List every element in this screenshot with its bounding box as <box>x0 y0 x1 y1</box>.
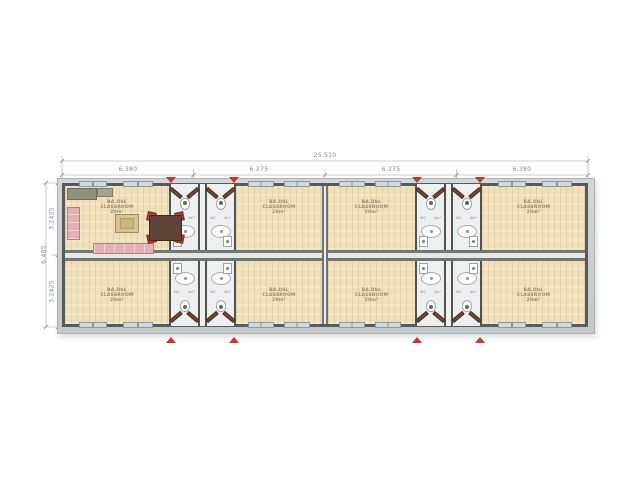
room-label: BA.DbLCLASSROOM20m² <box>482 288 585 303</box>
room-top-2: BA.DbLCLASSROOM20m² <box>236 186 322 250</box>
wc-unit: WC4m² <box>172 257 197 325</box>
room-top-3: BA.DbLCLASSROOM20m² <box>328 186 415 250</box>
wc-unit: WC4m² <box>454 185 479 253</box>
door-leaf <box>468 311 481 323</box>
dimension-segment-1: 6.380 <box>108 166 148 173</box>
entrance-marker-icon <box>412 337 422 343</box>
sink-icon <box>223 236 232 247</box>
door-leaf <box>205 187 218 199</box>
sink-icon <box>469 236 478 247</box>
window <box>79 322 107 328</box>
wc-unit: WC4m² <box>418 257 443 325</box>
floor-plan-canvas: 25.510 6.380 6.275 6.275 6.380 6.485 3.2… <box>0 0 625 490</box>
sofa <box>67 207 80 240</box>
toilet-icon <box>180 198 190 210</box>
window <box>498 181 526 187</box>
wc-unit-label: WC4m² <box>418 216 443 220</box>
wc-unit-label: WC4m² <box>208 216 233 220</box>
room-label: BA.DbLCLASSROOM20m² <box>65 288 169 303</box>
room-bottom-2: BA.DbLCLASSROOM20m² <box>236 261 322 324</box>
entrance-marker-icon <box>475 337 485 343</box>
room-label: BA.DbLCLASSROOM20m² <box>328 288 415 303</box>
door-leaf <box>169 187 182 199</box>
door-leaf <box>432 311 445 323</box>
window <box>123 322 153 328</box>
sink-icon <box>469 263 478 274</box>
toilet-icon <box>462 300 472 312</box>
dimension-segment-4: 6.380 <box>502 166 542 173</box>
dimension-overall-height: 6.485 <box>41 237 48 273</box>
toilet-icon <box>462 198 472 210</box>
window <box>284 181 310 187</box>
wc-unit-label: WC4m² <box>208 290 233 294</box>
door-leaf <box>415 311 428 323</box>
sink-icon <box>419 263 428 274</box>
window <box>79 181 107 187</box>
entrance-marker-icon <box>475 177 485 183</box>
door-leaf <box>186 311 199 323</box>
door-leaf <box>222 187 235 199</box>
door-leaf <box>169 311 182 323</box>
center-partition-wall <box>322 186 328 324</box>
entrance-marker-icon <box>229 337 239 343</box>
entrance-marker-icon <box>229 177 239 183</box>
window <box>542 322 572 328</box>
room-label: BA.DbLCLASSROOM20m² <box>482 200 585 215</box>
door-leaf <box>432 187 445 199</box>
entrance-marker-icon <box>412 177 422 183</box>
wc-unit-label: WC4m² <box>454 216 479 220</box>
window <box>248 181 274 187</box>
room-bottom-4: BA.DbLCLASSROOM20m² <box>482 261 585 324</box>
coffee-table <box>115 214 139 233</box>
wc-unit: WC4m² <box>418 185 443 253</box>
window <box>498 322 526 328</box>
room-top-4: BA.DbLCLASSROOM20m² <box>482 186 585 250</box>
door-leaf <box>186 187 199 199</box>
door-leaf <box>222 311 235 323</box>
toilet-icon <box>426 198 436 210</box>
room-label: BA.DbLCLASSROOM20m² <box>236 288 322 303</box>
window <box>375 181 401 187</box>
wc-unit-label: WC4m² <box>454 290 479 294</box>
sink-icon <box>223 263 232 274</box>
wc-unit-label: WC4m² <box>418 290 443 294</box>
entrance-marker-icon <box>166 177 176 183</box>
door-leaf <box>451 311 464 323</box>
window <box>339 181 365 187</box>
dimension-segment-3: 6.275 <box>371 166 411 173</box>
wc-unit: WC4m² <box>208 257 233 325</box>
window <box>339 322 365 328</box>
dimension-overall-width: 25.510 <box>295 152 355 159</box>
door-leaf <box>451 187 464 199</box>
sofa <box>93 243 154 254</box>
door-leaf <box>415 187 428 199</box>
cabinet <box>97 188 113 197</box>
cabinet <box>67 188 97 200</box>
toilet-icon <box>216 198 226 210</box>
sink-icon <box>173 263 182 274</box>
room-bottom-3: BA.DbLCLASSROOM20m² <box>328 261 415 324</box>
room-label: BA.DbLCLASSROOM20m² <box>236 200 322 215</box>
wc-unit: WC4m² <box>208 185 233 253</box>
toilet-icon <box>216 300 226 312</box>
dining-table <box>149 215 182 241</box>
window <box>123 181 153 187</box>
dimension-left-segment-2: 3.2425 <box>49 274 56 310</box>
toilet-icon <box>180 300 190 312</box>
door-leaf <box>468 187 481 199</box>
dimension-segment-2: 6.275 <box>239 166 279 173</box>
door-leaf <box>205 311 218 323</box>
window <box>375 322 401 328</box>
window <box>284 322 310 328</box>
room-label: BA.DbLCLASSROOM20m² <box>328 200 415 215</box>
sink-icon <box>419 236 428 247</box>
dimension-left-segment-1: 3.2425 <box>49 201 56 237</box>
room-bottom-1: BA.DbLCLASSROOM20m² <box>65 261 169 324</box>
entrance-marker-icon <box>166 337 176 343</box>
window <box>248 322 274 328</box>
toilet-icon <box>426 300 436 312</box>
wc-unit-label: WC4m² <box>172 290 197 294</box>
window <box>542 181 572 187</box>
wc-unit: WC4m² <box>454 257 479 325</box>
